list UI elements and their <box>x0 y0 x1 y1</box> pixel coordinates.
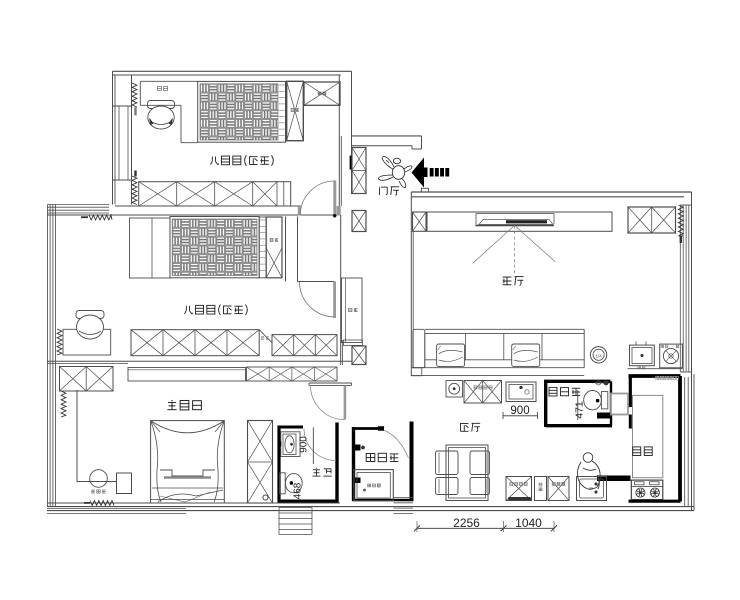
svg-text:900: 900 <box>299 436 310 453</box>
svg-text:2256: 2256 <box>453 516 480 530</box>
svg-text:468: 468 <box>293 482 304 499</box>
svg-text:471: 471 <box>574 401 586 419</box>
svg-text:1/4: 1/4 <box>595 353 602 358</box>
svg-text:1040: 1040 <box>515 516 542 530</box>
